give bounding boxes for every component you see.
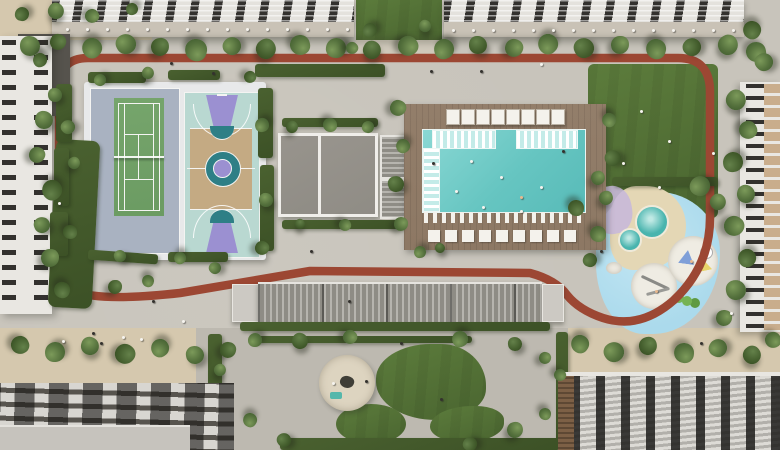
- pool-cabana: [461, 109, 475, 125]
- tower-roof-northeast: [444, 0, 744, 22]
- lounger-row-2: [428, 230, 588, 244]
- cabana-row: [446, 109, 566, 124]
- bottom-right-roof-parapet: [558, 372, 780, 376]
- hedge-courts-north-1: [88, 72, 146, 83]
- pavilion-roof-main: [258, 282, 542, 323]
- pool-lounger: [445, 230, 457, 242]
- hedge-courts-west-2: [54, 148, 69, 206]
- bottom-right-roof-wood-edge: [558, 372, 574, 450]
- pool-ledge-top-right: [516, 130, 578, 149]
- hedge-courts-north-2: [168, 70, 220, 80]
- left-tower-windows-1: [2, 40, 16, 310]
- garden-bench-icon: [330, 392, 342, 399]
- hedge-courts-west-3: [50, 212, 68, 256]
- pool-lounger: [479, 230, 491, 242]
- pool-lounger: [496, 230, 508, 242]
- pavilion-hedge-south: [240, 322, 550, 331]
- tennis-net-line: [114, 156, 164, 158]
- hedge-courts-east-2: [260, 165, 274, 251]
- pool-cabana: [446, 109, 460, 125]
- pool-cabana: [551, 109, 565, 125]
- left-tower-windows-2: [34, 40, 48, 310]
- hedge-playground-north: [612, 177, 718, 186]
- rooftop-terrace-northwest: [52, 22, 354, 37]
- pavilion-cap-left: [232, 284, 260, 322]
- clubhouse-hedge-south: [282, 220, 404, 229]
- bottom-right-roof-pattern: [558, 372, 780, 450]
- pool-lounger: [462, 230, 474, 242]
- tennis-court: [114, 98, 164, 216]
- left-tower-facade: [0, 36, 52, 314]
- pool-lounger: [547, 230, 559, 242]
- rooftop-terrace-northeast: [444, 22, 744, 37]
- tower-roof-northwest: [52, 0, 354, 22]
- garden-hedge-north: [252, 336, 472, 343]
- bottom-right-building-roof: [558, 372, 780, 450]
- pool-lounger: [513, 230, 525, 242]
- pool-cabana: [506, 109, 520, 125]
- pool-ledge-left: [423, 148, 440, 212]
- clubhouse-roof-left: [281, 136, 318, 214]
- bottom-left-building-roof: [0, 383, 234, 450]
- pool-cabana: [536, 109, 550, 125]
- center-circle-inner: [213, 159, 232, 178]
- tower-shadow: [52, 37, 742, 44]
- tennis-service-top: [124, 134, 154, 135]
- bottom-edge-hedge: [280, 438, 560, 450]
- pool-lounger: [428, 230, 440, 242]
- right-facade-balconies: [764, 84, 780, 330]
- pavilion-cap-right: [542, 284, 564, 322]
- pool-lounger: [564, 230, 576, 242]
- hedge-courts-east-1: [258, 88, 273, 158]
- tennis-service-bottom: [124, 179, 154, 180]
- right-facade-windows: [746, 84, 764, 330]
- bottom-left-roof-concrete-band: [0, 425, 190, 450]
- pool-lounger: [530, 230, 542, 242]
- pool-cabana: [476, 109, 490, 125]
- hoop-top-icon: [217, 94, 227, 96]
- hedge-courts-south-2: [168, 252, 228, 262]
- pool-ledge-top-left: [432, 130, 496, 149]
- hedge-courts-west-1: [56, 84, 72, 142]
- clubhouse-hedge-north: [282, 118, 378, 127]
- lounger-row-1: [424, 212, 584, 223]
- basketball-court: [184, 92, 260, 258]
- clubhouse-roof-right: [321, 136, 375, 214]
- amenity-courtyard-aerial: [0, 0, 780, 450]
- right-building-facade: [740, 82, 780, 332]
- pool-cabana: [521, 109, 535, 125]
- pool-cabana: [491, 109, 505, 125]
